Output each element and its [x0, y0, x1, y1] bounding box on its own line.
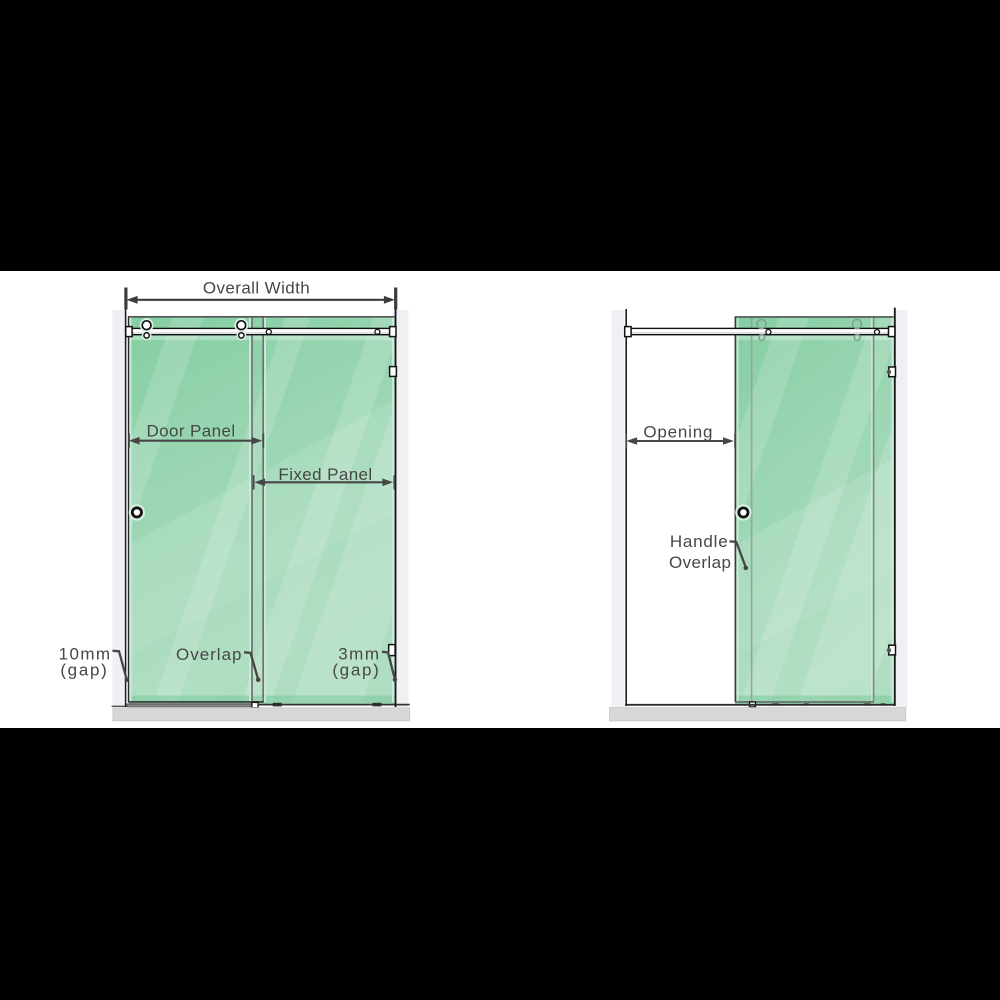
svg-text:(gap): (gap)	[332, 660, 380, 679]
svg-text:Overlap: Overlap	[176, 645, 243, 664]
svg-text:(gap): (gap)	[60, 660, 108, 679]
svg-text:Overlap: Overlap	[669, 553, 731, 572]
svg-text:Overall Width: Overall Width	[203, 278, 310, 297]
svg-text:Handle: Handle	[670, 532, 729, 551]
svg-text:Opening: Opening	[643, 422, 713, 441]
svg-text:Fixed Panel: Fixed Panel	[278, 465, 372, 484]
svg-text:Door Panel: Door Panel	[146, 422, 235, 441]
